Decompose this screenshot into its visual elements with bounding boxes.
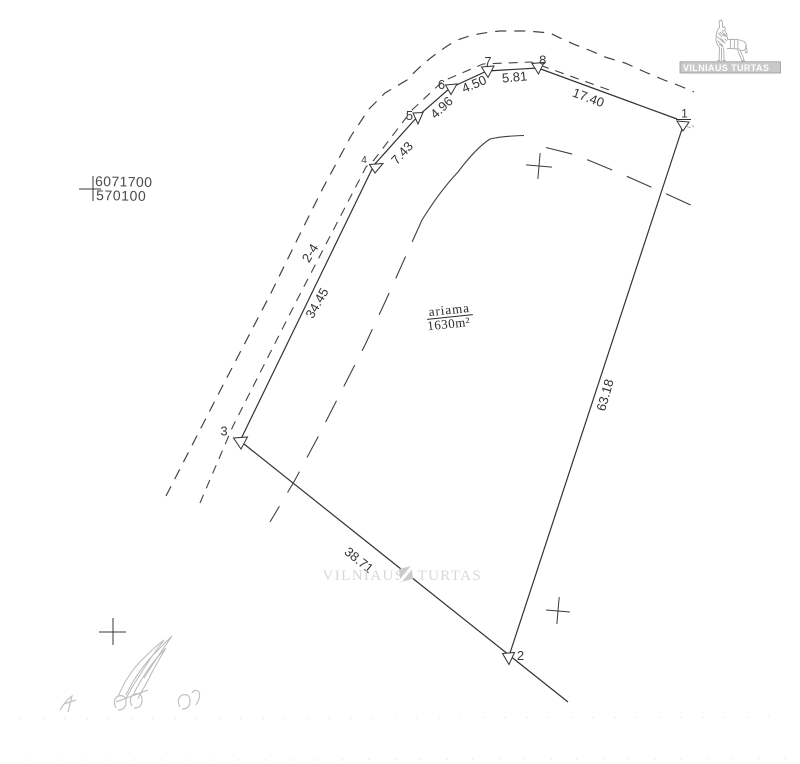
svg-text:63.18: 63.18 [593,377,616,412]
svg-text:2: 2 [517,648,524,663]
svg-text:5.81: 5.81 [501,68,528,85]
svg-text:4.96: 4.96 [427,93,456,121]
svg-text:7: 7 [484,54,491,69]
svg-text:8: 8 [539,53,546,68]
svg-text:5: 5 [406,108,413,123]
svg-text:17.40: 17.40 [571,85,607,110]
svg-text:570100: 570100 [96,187,147,204]
svg-text:7.43: 7.43 [388,139,416,168]
svg-text:4: 4 [361,155,367,166]
svg-text:2-4: 2-4 [299,241,322,265]
svg-text:3: 3 [220,424,227,439]
svg-text:TURTAS: TURTAS [418,568,483,584]
svg-text:VILNIAUS: VILNIAUS [323,568,405,584]
svg-text:1: 1 [681,107,688,121]
svg-text:4.50: 4.50 [459,72,488,96]
svg-text:VILNIAUS TURTAS: VILNIAUS TURTAS [683,63,769,73]
svg-text:1630m²: 1630m² [427,314,471,333]
svg-text:6: 6 [438,77,445,92]
